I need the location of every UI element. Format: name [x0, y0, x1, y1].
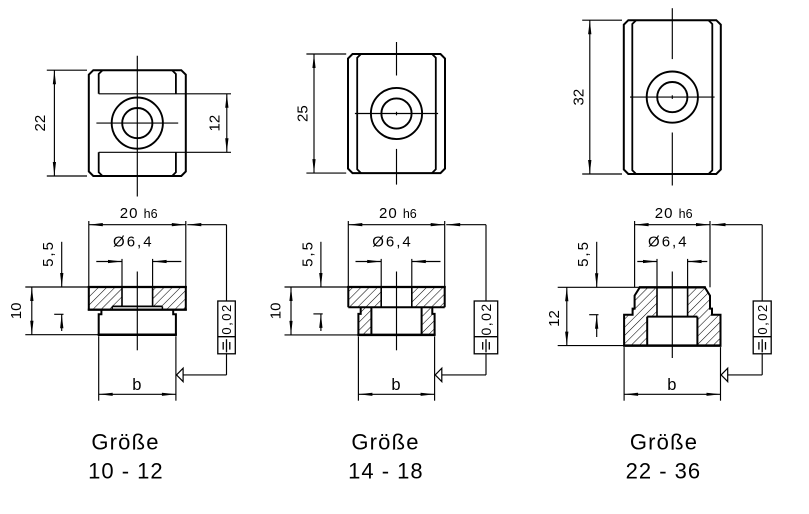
svg-text:Größe: Größe: [351, 430, 419, 455]
svg-text:0,02: 0,02: [219, 303, 234, 334]
svg-text:b: b: [132, 376, 141, 394]
svg-text:Größe: Größe: [630, 430, 698, 455]
svg-text:b: b: [667, 376, 676, 394]
svg-text:10 - 12: 10 - 12: [88, 459, 164, 484]
svg-text:5,5: 5,5: [575, 240, 592, 267]
svg-text:25: 25: [295, 105, 312, 122]
svg-text:10: 10: [267, 303, 284, 320]
svg-text:20 h6: 20 h6: [120, 205, 158, 222]
svg-text:0,02: 0,02: [478, 302, 494, 335]
svg-text:12: 12: [206, 115, 223, 132]
svg-text:12: 12: [546, 310, 563, 327]
svg-text:10: 10: [8, 303, 25, 320]
svg-text:22 - 36: 22 - 36: [626, 459, 702, 484]
svg-text:14 - 18: 14 - 18: [348, 459, 424, 484]
svg-text:5,5: 5,5: [299, 240, 316, 267]
svg-text:22: 22: [32, 115, 49, 132]
svg-text:Größe: Größe: [91, 430, 159, 455]
svg-text:b: b: [391, 376, 400, 394]
svg-text:20 h6: 20 h6: [379, 205, 417, 222]
svg-text:Ø6,4: Ø6,4: [113, 233, 154, 250]
svg-text:5,5: 5,5: [40, 240, 57, 267]
svg-text:20 h6: 20 h6: [655, 205, 693, 222]
svg-text:0,02: 0,02: [755, 303, 770, 334]
svg-text:Ø6,4: Ø6,4: [372, 233, 413, 250]
svg-text:32: 32: [571, 89, 588, 106]
svg-text:Ø6,4: Ø6,4: [648, 233, 689, 250]
